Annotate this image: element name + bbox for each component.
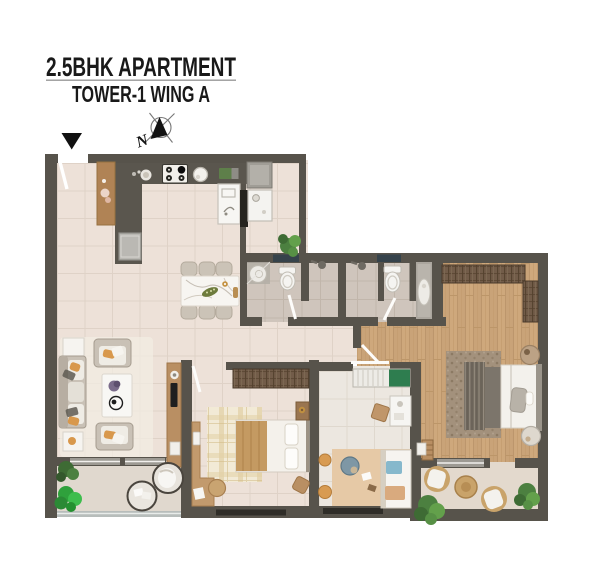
svg-text:2.5BHK APARTMENT: 2.5BHK APARTMENT (46, 52, 236, 82)
svg-text:TOWER-1 WING A: TOWER-1 WING A (72, 81, 210, 107)
